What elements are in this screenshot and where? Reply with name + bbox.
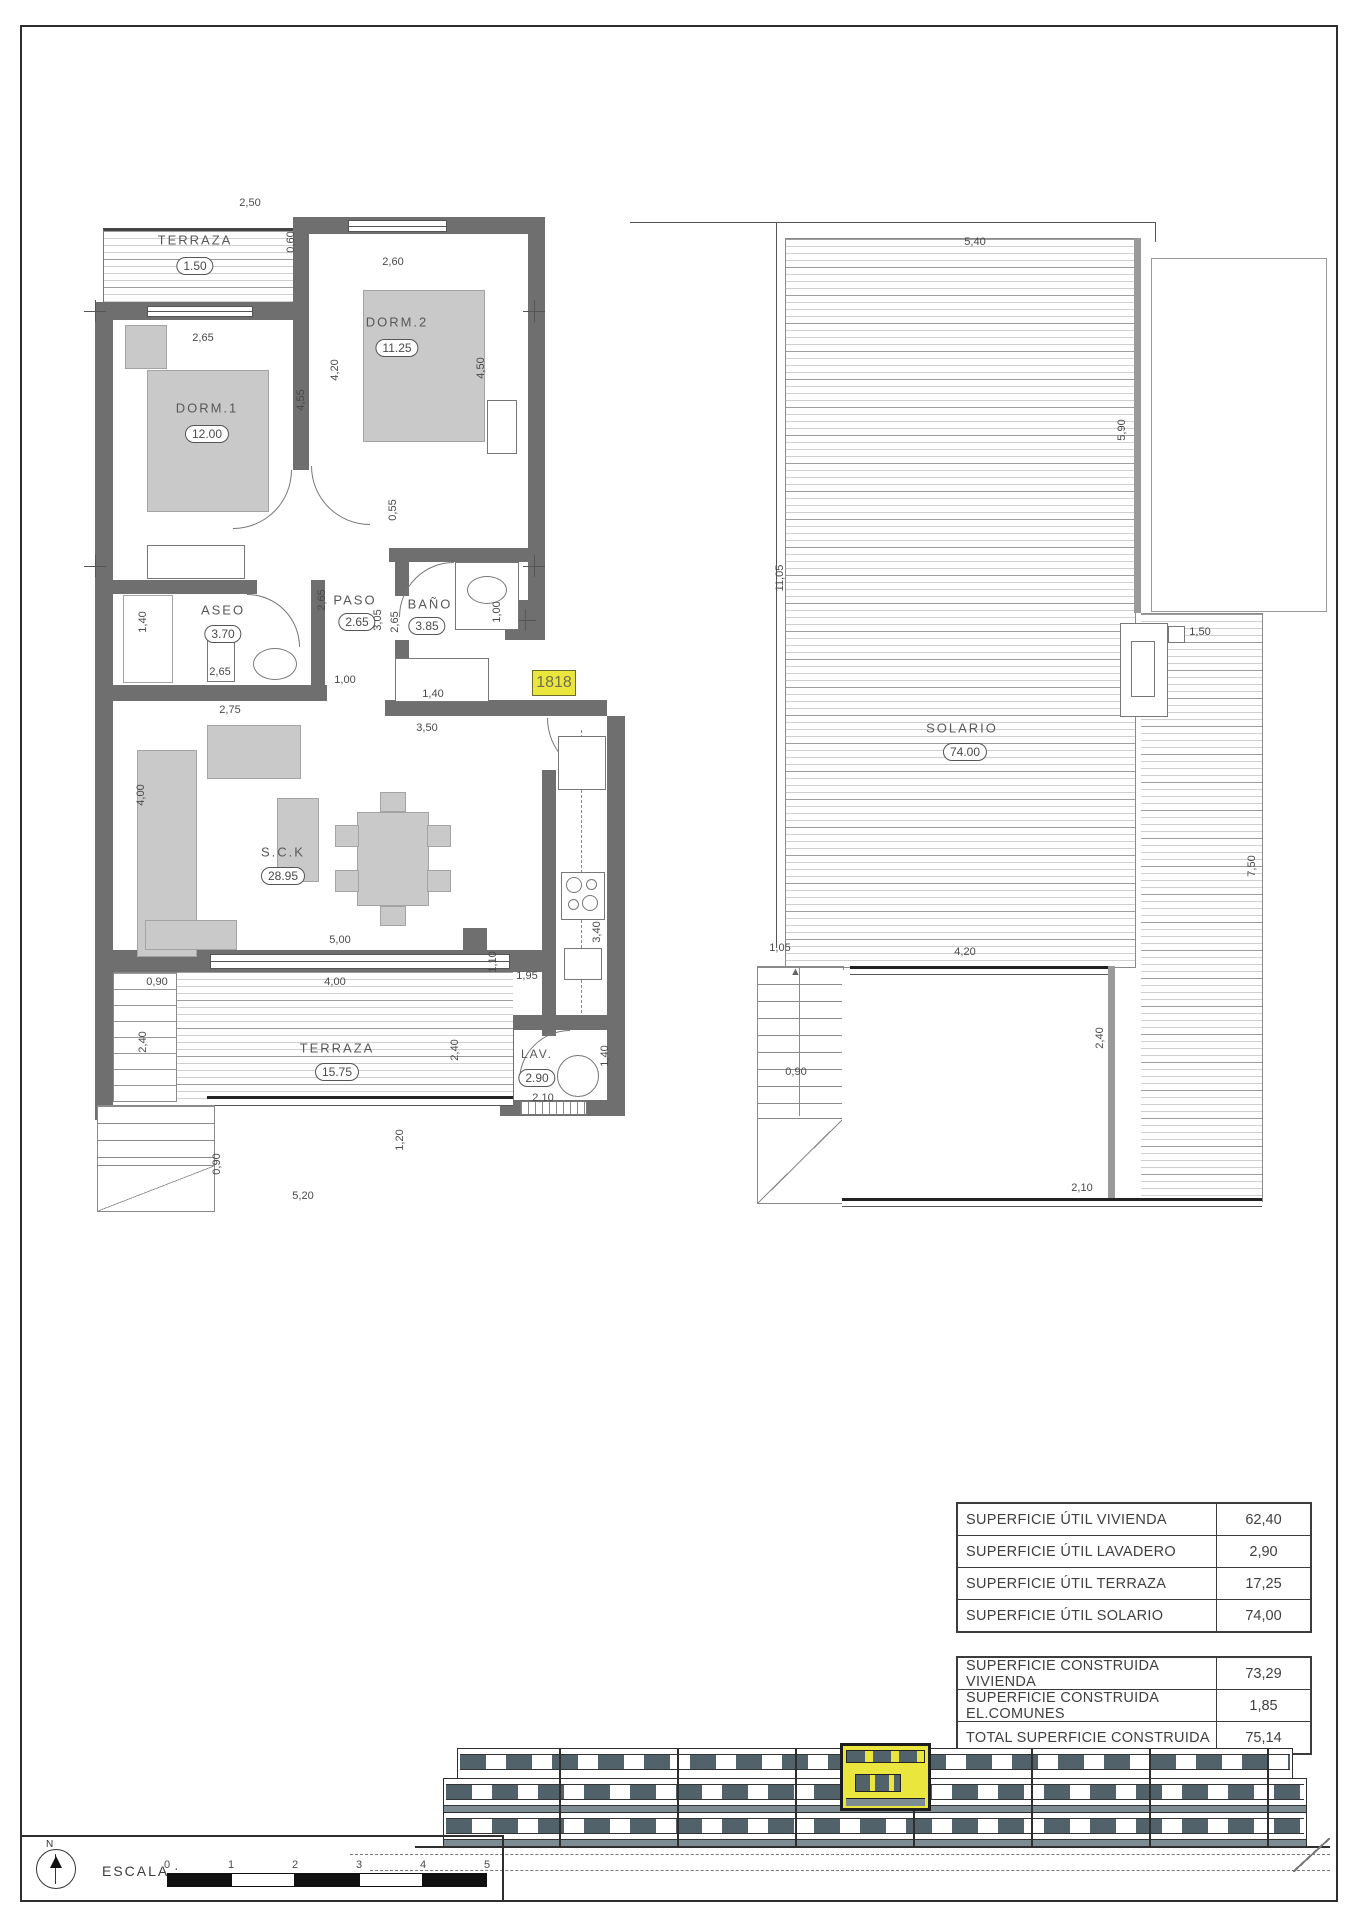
wall	[385, 700, 607, 716]
table-row: SUPERFICIE ÚTIL TERRAZA 17,25	[958, 1567, 1310, 1599]
chair	[335, 870, 359, 892]
dimension-label: 1,40	[599, 1045, 611, 1066]
burner-icon	[582, 895, 598, 911]
room-label: ASEO	[201, 603, 245, 618]
room-label: SOLARIO	[926, 721, 998, 736]
roof-edge-railing	[842, 1198, 1262, 1207]
room-area-badge: 2.65	[338, 613, 375, 631]
chair	[380, 792, 406, 812]
elevation-floor-1	[443, 1812, 1307, 1848]
table-cell-value: 73,29	[1217, 1666, 1310, 1682]
dimension-label: 2,65	[192, 332, 213, 344]
section-mark-icon	[523, 300, 545, 322]
side-table	[487, 400, 517, 454]
sliding-glass-door	[210, 954, 510, 969]
sideboard-furniture	[145, 920, 237, 950]
dimension-label: 0,90	[785, 1066, 806, 1078]
dimension-label: 0,60	[285, 231, 297, 252]
balcony-rail	[846, 1798, 925, 1806]
table-row: SUPERFICIE CONSTRUIDA VIVIENDA 73,29	[958, 1658, 1310, 1689]
window-band	[846, 1750, 925, 1763]
stair-landing	[757, 1118, 844, 1204]
skylight-inner	[1131, 641, 1155, 697]
roof-outline	[630, 222, 1156, 223]
window-band	[446, 1818, 1304, 1834]
door-arc	[311, 466, 370, 525]
wall	[95, 302, 113, 975]
room-area-badge: 15.75	[315, 1063, 359, 1081]
table-row: SUPERFICIE ÚTIL VIVIENDA 62,40	[958, 1504, 1310, 1535]
dimension-label: 2,10	[1071, 1182, 1092, 1194]
built-area-table: SUPERFICIE CONSTRUIDA VIVIENDA 73,29 SUP…	[956, 1656, 1312, 1755]
scale-bar: 0 1 2 3 4 5	[167, 1861, 487, 1887]
highlighted-unit	[840, 1743, 931, 1811]
dining-table	[357, 812, 429, 906]
section-mark-icon	[84, 555, 106, 577]
dimension-label: 5,90	[1116, 419, 1128, 440]
dimension-label: 0,90	[211, 1153, 223, 1174]
exterior-stairs	[97, 1105, 215, 1167]
scale-segment	[423, 1873, 487, 1887]
chair	[380, 906, 406, 926]
room-label: PASO	[333, 593, 376, 608]
dimension-label: 2,65	[316, 589, 328, 610]
unit-number-badge: 1818	[532, 670, 576, 696]
room-area-badge: 2.90	[518, 1069, 555, 1087]
bed-furniture	[363, 290, 485, 442]
cooktop	[561, 872, 605, 920]
dimension-label: 4,00	[324, 976, 345, 988]
wall	[389, 548, 545, 562]
room-label: BAÑO	[408, 597, 453, 612]
dimension-label: 1,10	[487, 951, 499, 972]
courtyard-void	[842, 970, 1108, 1200]
terrace-railing	[207, 1096, 513, 1106]
dimension-label: 2,75	[219, 704, 240, 716]
window	[147, 306, 253, 317]
table-cell-value: 74,00	[1217, 1608, 1310, 1624]
chair	[427, 870, 451, 892]
table-cell-label: SUPERFICIE ÚTIL TERRAZA	[958, 1568, 1217, 1599]
terrain-slope	[1293, 1838, 1330, 1872]
table-cell-label: SUPERFICIE CONSTRUIDA EL.COMUNES	[958, 1690, 1217, 1721]
stair-center-line	[799, 968, 800, 1116]
dimension-label: 4,00	[135, 784, 147, 805]
wardrobe	[123, 595, 173, 683]
table-cell-label: SUPERFICIE ÚTIL LAVADERO	[958, 1536, 1217, 1567]
section-mark-icon	[84, 300, 106, 322]
dimension-label: 1,00	[334, 674, 355, 686]
building-elevation	[415, 1742, 1330, 1882]
north-arrow-icon	[36, 1849, 76, 1889]
dimension-label: 1,95	[516, 970, 537, 982]
dimension-label: 3,05	[372, 609, 384, 630]
scale-segment	[231, 1873, 295, 1887]
kitchen-sink	[564, 948, 602, 980]
room-label: DORM.2	[366, 315, 429, 330]
scale-tick: 1	[228, 1859, 234, 1871]
roof-outline	[1155, 222, 1156, 242]
wall	[500, 1015, 625, 1030]
vent-box	[1168, 626, 1185, 643]
room-area-badge: 11.25	[375, 339, 418, 357]
room-area-badge: 1.50	[176, 257, 213, 275]
stair-landing	[97, 1165, 215, 1212]
dimension-label: 11,05	[774, 565, 786, 592]
dimension-label: 1,40	[137, 611, 149, 632]
burner-icon	[586, 879, 597, 890]
room-label: LAV.	[521, 1047, 553, 1061]
scale-tick: 3	[356, 1859, 362, 1871]
section-mark-icon	[523, 555, 545, 577]
table-cell-label: SUPERFICIE ÚTIL SOLARIO	[958, 1600, 1217, 1631]
dimension-label: 4,50	[475, 357, 487, 378]
door-arc	[247, 594, 300, 647]
dimension-label: 2,40	[449, 1039, 461, 1060]
stairwell	[757, 966, 844, 1120]
scale-tick: 0	[164, 1859, 170, 1871]
table-cell-label: SUPERFICIE ÚTIL VIVIENDA	[958, 1504, 1217, 1535]
ground-dashed-line	[370, 1870, 1330, 1871]
dimension-label: 4,55	[295, 389, 307, 410]
courtyard-railing	[850, 966, 1108, 975]
nightstand-furniture	[125, 325, 167, 369]
stair-direction-icon: ▲	[790, 966, 801, 978]
scale-segment	[167, 1873, 231, 1887]
fridge	[558, 736, 606, 790]
solarium-deck	[785, 238, 1136, 968]
table-row: SUPERFICIE ÚTIL SOLARIO 74,00	[958, 1599, 1310, 1631]
wall	[293, 234, 309, 470]
room-label: DORM.1	[176, 401, 239, 416]
dimension-label: 4,20	[329, 359, 341, 380]
wall	[95, 975, 113, 1120]
solarium-roof-plan: ▲ SOLARIO 74.00 5,40 11,05 5,90 1,50 7,5…	[630, 180, 1330, 1220]
room-label: TERRAZA	[158, 233, 233, 248]
water-heater	[557, 1055, 599, 1097]
room-area-badge: 74.00	[943, 743, 987, 761]
window-band	[855, 1774, 901, 1792]
wardrobe	[147, 545, 245, 579]
dimension-label: 2,40	[137, 1031, 149, 1052]
wall	[542, 770, 556, 1036]
dimension-label: 5,40	[964, 236, 985, 248]
sink-basin	[467, 576, 507, 604]
table-cell-value: 62,40	[1217, 1512, 1310, 1528]
dimension-label: 2,40	[1094, 1027, 1106, 1048]
room-area-badge: 3.85	[408, 617, 445, 635]
dimension-label: 1,50	[1189, 626, 1210, 638]
room-label: TERRAZA	[300, 1041, 375, 1056]
useful-area-table: SUPERFICIE ÚTIL VIVIENDA 62,40 SUPERFICI…	[956, 1502, 1312, 1633]
dimension-label: 2,10	[532, 1092, 553, 1104]
wall	[95, 685, 327, 701]
wall	[1108, 966, 1115, 1202]
dimension-label: 1,40	[422, 688, 443, 700]
dimension-label: 2,65	[209, 666, 230, 678]
dimension-label: 1,05	[769, 942, 790, 954]
ground-line	[415, 1846, 1330, 1848]
dimension-label: 7,50	[1246, 855, 1258, 876]
table-cell-label: SUPERFICIE CONSTRUIDA VIVIENDA	[958, 1658, 1217, 1689]
table-row: SUPERFICIE CONSTRUIDA EL.COMUNES 1,85	[958, 1689, 1310, 1721]
dimension-label: 4,20	[954, 946, 975, 958]
loveseat-furniture	[207, 725, 301, 779]
table-row: SUPERFICIE ÚTIL LAVADERO 2,90	[958, 1535, 1310, 1567]
dimension-label: 1,00	[491, 601, 503, 622]
dimension-label: 1,20	[394, 1129, 406, 1150]
dimension-label: 2,65	[389, 611, 401, 632]
apartment-floor-plan: TERRAZA 1.50 DORM.1 12.00 DORM.2 11.25 A…	[95, 170, 625, 1230]
scale-tick: 4	[420, 1859, 426, 1871]
dimension-label: 3,50	[416, 722, 437, 734]
adjacent-unit-outline	[1151, 258, 1327, 612]
dimension-label: 2,50	[239, 197, 260, 209]
table-cell-value: 2,90	[1217, 1544, 1310, 1560]
title-block: N ESCALA : 0 1 2 3 4 5	[22, 1835, 504, 1900]
burner-icon	[568, 899, 579, 910]
scale-tick: 2	[292, 1859, 298, 1871]
window	[348, 220, 447, 232]
room-area-badge: 3.70	[204, 625, 241, 643]
room-area-badge: 28.95	[261, 867, 305, 885]
scale-tick: 5	[484, 1859, 490, 1871]
table-cell-value: 1,85	[1217, 1698, 1310, 1714]
room-label: S.C.K	[261, 845, 305, 860]
dimension-label: 2,60	[382, 256, 403, 268]
sink-basin	[253, 648, 297, 680]
dimension-label: 0,90	[146, 976, 167, 988]
burner-icon	[566, 877, 582, 893]
dimension-label: 5,20	[292, 1190, 313, 1202]
dimension-label: 0,55	[387, 499, 399, 520]
wall	[1134, 238, 1141, 613]
chair	[427, 825, 451, 847]
dimension-label: 5,00	[329, 934, 350, 946]
scale-segment	[295, 1873, 359, 1887]
table-cell-value: 17,25	[1217, 1576, 1310, 1592]
dimension-label: 3,40	[591, 921, 603, 942]
chair	[335, 825, 359, 847]
scale-segment	[359, 1873, 423, 1887]
wall	[95, 580, 257, 594]
room-area-badge: 12.00	[185, 425, 229, 443]
